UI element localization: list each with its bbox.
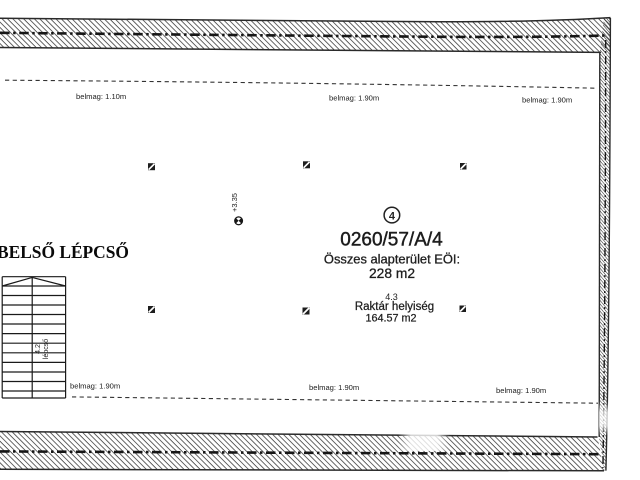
svg-text:belmag: 1.10m: belmag: 1.10m [76,92,126,101]
svg-text:belmag: 1.90m: belmag: 1.90m [496,386,546,395]
svg-text:Raktár helyiség: Raktár helyiség [355,301,434,313]
svg-text:+3.35: +3.35 [230,193,239,212]
svg-text:Összes alapterület EÖI:: Összes alapterület EÖI: [324,251,460,266]
svg-text:228 m2: 228 m2 [369,266,415,281]
svg-text:belmag: 1.90m: belmag: 1.90m [522,95,572,104]
svg-text:0260/57/A/4: 0260/57/A/4 [340,229,443,250]
svg-text:4.2: 4.2 [35,344,42,354]
svg-text:lépcső: lépcső [43,339,50,359]
svg-text:belmag: 1.90m: belmag: 1.90m [329,94,379,103]
svg-text:164.57 m2: 164.57 m2 [365,313,416,325]
svg-text:BELSŐ LÉPCSŐ: BELSŐ LÉPCSŐ [0,242,129,262]
svg-text:belmag: 1.90m: belmag: 1.90m [309,383,359,392]
svg-text:belmag: 1.90m: belmag: 1.90m [70,381,120,390]
svg-text:4: 4 [389,210,396,222]
